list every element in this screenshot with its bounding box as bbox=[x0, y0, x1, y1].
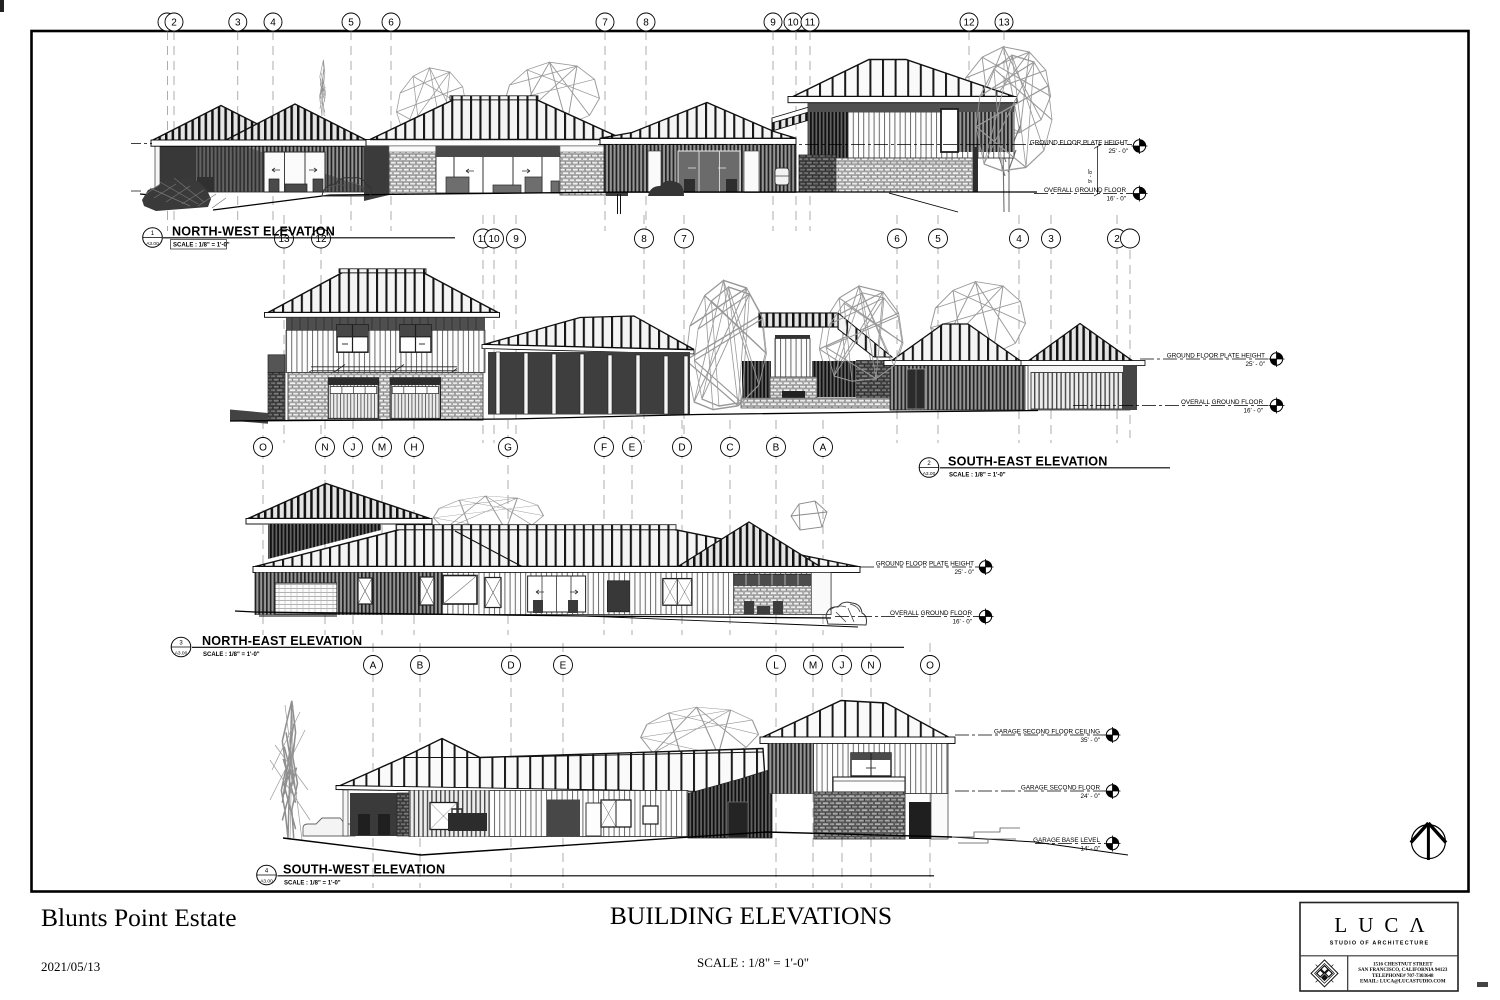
svg-text:SCALE : 1/8" = 1'-0": SCALE : 1/8" = 1'-0" bbox=[173, 243, 230, 249]
svg-text:2: 2 bbox=[171, 18, 177, 29]
svg-text:25' - 0": 25' - 0" bbox=[1108, 148, 1128, 155]
svg-text:M: M bbox=[809, 661, 817, 672]
svg-text:16' - 0": 16' - 0" bbox=[1243, 408, 1263, 415]
svg-text:3: 3 bbox=[1048, 234, 1054, 245]
svg-text:9: 9 bbox=[513, 234, 519, 245]
svg-text:N: N bbox=[867, 661, 874, 672]
svg-text:A3.00: A3.00 bbox=[175, 651, 188, 657]
svg-text:5: 5 bbox=[935, 234, 941, 245]
svg-text:7: 7 bbox=[602, 18, 608, 29]
svg-text:10: 10 bbox=[787, 18, 799, 29]
svg-text:SAN FRANCISCO, CALIFORNIA 9412: SAN FRANCISCO, CALIFORNIA 94123 bbox=[1358, 968, 1448, 973]
svg-text:F: F bbox=[601, 443, 607, 454]
svg-text:OVERALL GROUND FLOOR: OVERALL GROUND FLOOR bbox=[1044, 187, 1126, 194]
svg-text:O: O bbox=[926, 661, 934, 672]
svg-text:6: 6 bbox=[388, 18, 394, 29]
svg-text:2021/05/13: 2021/05/13 bbox=[41, 959, 100, 974]
svg-text:E: E bbox=[629, 443, 636, 454]
svg-text:7: 7 bbox=[681, 234, 687, 245]
svg-text:H: H bbox=[410, 443, 417, 454]
svg-text:O: O bbox=[259, 443, 267, 454]
svg-text:SCALE : 1/8" = 1'-0": SCALE : 1/8" = 1'-0" bbox=[203, 652, 260, 658]
svg-text:GROUND FLOOR PLATE HEIGHT: GROUND FLOOR PLATE HEIGHT bbox=[1167, 353, 1265, 360]
svg-text:11: 11 bbox=[805, 18, 816, 29]
svg-text:25' - 0": 25' - 0" bbox=[954, 569, 974, 576]
svg-text:A: A bbox=[370, 661, 377, 672]
svg-text:N: N bbox=[321, 443, 328, 454]
svg-text:16' - 0": 16' - 0" bbox=[952, 619, 972, 626]
svg-text:A: A bbox=[820, 443, 827, 454]
svg-text:SOUTH-EAST ELEVATION: SOUTH-EAST ELEVATION bbox=[948, 455, 1108, 469]
svg-text:LUCΛ: LUCΛ bbox=[1334, 913, 1435, 937]
svg-text:NORTH-WEST ELEVATION: NORTH-WEST ELEVATION bbox=[172, 225, 335, 239]
svg-text:M: M bbox=[378, 443, 386, 454]
svg-text:L: L bbox=[773, 661, 779, 672]
svg-text:B: B bbox=[417, 661, 424, 672]
svg-text:10: 10 bbox=[488, 234, 500, 245]
svg-text:35' - 0": 35' - 0" bbox=[1080, 737, 1100, 744]
svg-text:OVERALL GROUND FLOOR: OVERALL GROUND FLOOR bbox=[890, 610, 972, 617]
svg-text:1516 CHESTNUT STREET: 1516 CHESTNUT STREET bbox=[1373, 963, 1433, 968]
svg-text:6: 6 bbox=[894, 234, 900, 245]
svg-text:8: 8 bbox=[643, 18, 649, 29]
svg-text:EMAIL: LUCA@LUCASTUDIO.COM: EMAIL: LUCA@LUCASTUDIO.COM bbox=[1360, 980, 1446, 985]
svg-text:9' - 8": 9' - 8" bbox=[1088, 169, 1094, 183]
svg-text:B: B bbox=[773, 443, 780, 454]
svg-text:SOUTH-WEST ELEVATION: SOUTH-WEST ELEVATION bbox=[283, 863, 445, 877]
svg-text:13: 13 bbox=[998, 18, 1010, 29]
svg-text:5: 5 bbox=[348, 18, 354, 29]
svg-text:16' - 0": 16' - 0" bbox=[1106, 196, 1126, 203]
svg-text:D: D bbox=[678, 443, 685, 454]
svg-text:24' - 0": 24' - 0" bbox=[1080, 793, 1100, 800]
svg-text:GROUND FLOOR PLATE HEIGHT: GROUND FLOOR PLATE HEIGHT bbox=[876, 561, 974, 568]
svg-text:TELEPHONE# 707-7303648: TELEPHONE# 707-7303648 bbox=[1372, 974, 1434, 979]
svg-text:2: 2 bbox=[1114, 234, 1120, 245]
svg-text:25' - 0": 25' - 0" bbox=[1245, 361, 1265, 368]
svg-text:4: 4 bbox=[1016, 234, 1022, 245]
svg-text:SCALE : 1/8" = 1'-0": SCALE : 1/8" = 1'-0" bbox=[949, 473, 1006, 479]
svg-text:NORTH-EAST ELEVATION: NORTH-EAST ELEVATION bbox=[202, 634, 362, 648]
svg-text:C: C bbox=[726, 443, 733, 454]
svg-text:GARAGE SECOND FLOOR: GARAGE SECOND FLOOR bbox=[1021, 785, 1101, 792]
svg-text:J: J bbox=[351, 443, 356, 454]
svg-text:SCALE : 1/8" = 1'-0": SCALE : 1/8" = 1'-0" bbox=[697, 955, 809, 970]
svg-text:G: G bbox=[504, 443, 512, 454]
svg-text:4: 4 bbox=[270, 18, 276, 29]
svg-text:A3.00: A3.00 bbox=[146, 241, 159, 247]
svg-text:STUDIO OF ARCHITECTURE: STUDIO OF ARCHITECTURE bbox=[1330, 941, 1430, 947]
svg-text:14' - 0": 14' - 0" bbox=[1080, 846, 1100, 853]
svg-text:BUILDING ELEVATIONS: BUILDING ELEVATIONS bbox=[610, 901, 892, 930]
svg-text:SCALE : 1/8" = 1'-0": SCALE : 1/8" = 1'-0" bbox=[284, 881, 341, 887]
svg-text:12: 12 bbox=[963, 18, 975, 29]
svg-text:8: 8 bbox=[641, 234, 647, 245]
svg-text:9: 9 bbox=[770, 18, 776, 29]
svg-text:D: D bbox=[507, 661, 514, 672]
svg-text:J: J bbox=[840, 661, 845, 672]
svg-text:GARAGE BASE LEVEL: GARAGE BASE LEVEL bbox=[1033, 837, 1100, 844]
svg-text:GARAGE SECOND FLOOR CEILING: GARAGE SECOND FLOOR CEILING bbox=[994, 729, 1100, 736]
svg-text:Blunts Point Estate: Blunts Point Estate bbox=[41, 903, 237, 932]
svg-text:E: E bbox=[560, 661, 567, 672]
svg-text:OVERALL GROUND FLOOR: OVERALL GROUND FLOOR bbox=[1181, 399, 1263, 406]
svg-text:A3.00: A3.00 bbox=[260, 879, 273, 885]
svg-text:3: 3 bbox=[235, 18, 241, 29]
svg-text:A3.00: A3.00 bbox=[923, 471, 936, 477]
svg-text:GROUND FLOOR PLATE HEIGHT: GROUND FLOOR PLATE HEIGHT bbox=[1030, 140, 1128, 147]
